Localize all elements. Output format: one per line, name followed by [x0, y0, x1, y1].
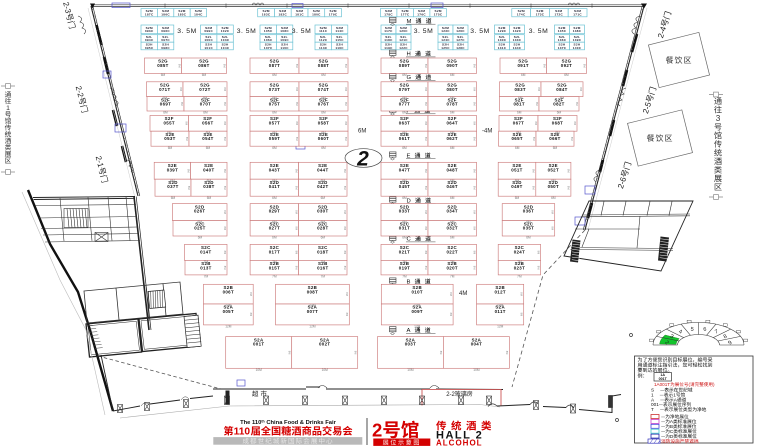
svg-text:6M: 6M	[272, 179, 277, 183]
svg-text:009T: 009T	[411, 309, 422, 314]
svg-text:6M: 6M	[321, 146, 326, 150]
svg-text:021T: 021T	[399, 249, 410, 254]
svg-text:8M: 8M	[249, 313, 253, 317]
svg-text:6M: 6M	[521, 73, 526, 77]
svg-text:6M: 6M	[450, 111, 455, 115]
svg-text:6M: 6M	[402, 196, 407, 200]
svg-text:6M: 6M	[168, 146, 173, 150]
svg-text:6M: 6M	[207, 196, 212, 200]
svg-text:102C: 102C	[221, 29, 230, 33]
svg-text:184C: 184C	[194, 13, 203, 17]
svg-text:8M: 8M	[223, 226, 227, 230]
svg-text:126C: 126C	[456, 29, 465, 33]
svg-text:2-2: 2-2	[446, 392, 455, 398]
svg-text:8M: 8M	[472, 251, 476, 255]
svg-text:7M: 7M	[450, 260, 455, 264]
svg-text:8M: 8M	[223, 121, 227, 125]
svg-text:022T: 022T	[446, 249, 457, 254]
svg-text:8M: 8M	[345, 292, 349, 296]
svg-text:6M: 6M	[321, 179, 326, 183]
svg-text:10M: 10M	[407, 368, 414, 372]
svg-text:8M: 8M	[223, 169, 227, 173]
svg-text:135C: 135C	[558, 29, 567, 33]
svg-text:011T: 011T	[495, 309, 506, 314]
svg-text:125C: 125C	[441, 46, 450, 50]
svg-text:8M: 8M	[185, 137, 189, 141]
svg-text:173C: 173C	[536, 13, 545, 17]
svg-text:6M: 6M	[515, 196, 520, 200]
svg-text:035T: 035T	[523, 226, 534, 231]
svg-text:12M: 12M	[497, 304, 504, 308]
svg-text:6M: 6M	[272, 236, 277, 240]
svg-text:8M: 8M	[223, 210, 227, 214]
svg-text:072T: 072T	[199, 87, 210, 92]
svg-text:078T: 078T	[446, 102, 457, 107]
svg-text:6M: 6M	[197, 220, 202, 224]
svg-text:8M: 8M	[223, 186, 227, 190]
svg-text:8M: 8M	[177, 64, 181, 68]
svg-text:045T: 045T	[399, 184, 410, 189]
svg-text:049T: 049T	[511, 184, 522, 189]
svg-text:8M: 8M	[449, 292, 453, 296]
svg-text:054T: 054T	[202, 136, 213, 141]
svg-text:8M: 8M	[288, 351, 292, 355]
svg-text:6M: 6M	[272, 196, 277, 200]
svg-text:066T: 066T	[549, 136, 560, 141]
svg-text:6M: 6M	[206, 146, 211, 150]
svg-text:8M: 8M	[472, 121, 476, 125]
svg-text:043T: 043T	[269, 167, 280, 172]
svg-text:080T: 080T	[446, 87, 457, 92]
svg-text:033T: 033T	[399, 209, 410, 214]
svg-text:8M: 8M	[344, 64, 348, 68]
svg-text:1: 1	[6, 105, 10, 112]
svg-text:001T: 001T	[659, 377, 668, 381]
svg-text:7M: 7M	[272, 260, 277, 264]
svg-text:176C: 176C	[417, 13, 426, 17]
svg-text:034T: 034T	[446, 209, 457, 214]
svg-text:8M: 8M	[294, 210, 298, 214]
svg-text:7M: 7M	[204, 275, 209, 279]
svg-text:7M: 7M	[402, 260, 407, 264]
svg-text:8M: 8M	[249, 292, 253, 296]
svg-text:12M: 12M	[309, 304, 316, 308]
svg-text:8M: 8M	[424, 64, 428, 68]
svg-text:6M: 6M	[518, 96, 523, 100]
svg-text:8M: 8M	[472, 226, 476, 230]
svg-text:029T: 029T	[269, 209, 280, 214]
svg-text:012T: 012T	[494, 289, 505, 294]
svg-text:8M: 8M	[542, 64, 546, 68]
svg-text:114C: 114C	[335, 29, 344, 33]
svg-text:8M: 8M	[223, 102, 227, 106]
svg-text:053T: 053T	[164, 136, 175, 141]
svg-text:129C: 129C	[498, 29, 507, 33]
svg-text:082T: 082T	[553, 102, 564, 107]
svg-text:6M: 6M	[515, 146, 520, 150]
svg-text:055T: 055T	[163, 121, 174, 126]
svg-text:181C: 181C	[295, 13, 304, 17]
svg-text:6M: 6M	[321, 96, 326, 100]
svg-text:-4M: -4M	[482, 129, 492, 135]
svg-text:068T: 068T	[552, 121, 563, 126]
svg-text:110: 110	[234, 427, 251, 438]
svg-text:007T: 007T	[307, 309, 318, 314]
svg-text:002T: 002T	[319, 342, 330, 347]
svg-text:6M: 6M	[202, 73, 207, 77]
svg-text:018T: 018T	[317, 249, 328, 254]
svg-text:061T: 061T	[399, 136, 410, 141]
svg-text:10M: 10M	[256, 368, 263, 372]
svg-text:6M: 6M	[515, 179, 520, 183]
svg-text:10M: 10M	[322, 368, 329, 372]
svg-text:093C: 093C	[145, 29, 154, 33]
svg-text:8M: 8M	[573, 121, 577, 125]
svg-text:8M: 8M	[295, 137, 299, 141]
svg-text:120C: 120C	[399, 29, 408, 33]
svg-text:038T: 038T	[203, 184, 214, 189]
svg-text:8M: 8M	[570, 137, 574, 141]
svg-text:8M: 8M	[344, 87, 348, 91]
svg-text:023T: 023T	[514, 265, 525, 270]
svg-text:008T: 008T	[307, 289, 318, 294]
svg-text:8M: 8M	[439, 351, 443, 355]
svg-text:8M: 8M	[567, 169, 571, 173]
svg-text:6M: 6M	[402, 131, 407, 135]
svg-text:079T: 079T	[399, 87, 410, 92]
svg-text:171C: 171C	[573, 13, 582, 17]
svg-text:104C: 104C	[221, 46, 230, 50]
svg-text:052T: 052T	[548, 167, 559, 172]
svg-text:6M: 6M	[272, 73, 277, 77]
svg-text:4M: 4M	[459, 291, 467, 297]
svg-text:131C: 131C	[498, 46, 507, 50]
svg-text:8M: 8M	[424, 186, 428, 190]
svg-text:12M: 12M	[309, 325, 316, 329]
svg-text:014T: 014T	[200, 249, 211, 254]
svg-text:7M: 7M	[402, 275, 407, 279]
svg-text:024T: 024T	[514, 249, 525, 254]
svg-text:8M: 8M	[535, 102, 539, 106]
svg-text:183C: 183C	[262, 13, 271, 17]
svg-text:8M: 8M	[579, 87, 583, 91]
svg-text:10M: 10M	[473, 368, 480, 372]
svg-text:8M: 8M	[344, 121, 348, 125]
svg-text:8M: 8M	[179, 87, 183, 91]
svg-text:047T: 047T	[399, 167, 410, 172]
svg-text:5: 5	[690, 327, 694, 333]
svg-text:1A001T: 1A001T	[654, 382, 670, 387]
svg-text:6M: 6M	[203, 96, 208, 100]
svg-text:6M: 6M	[321, 111, 326, 115]
svg-text:12M: 12M	[225, 304, 232, 308]
svg-text:042T: 042T	[317, 184, 328, 189]
svg-text:8M: 8M	[537, 87, 541, 91]
svg-text:006T: 006T	[223, 289, 234, 294]
svg-text:037T: 037T	[167, 184, 178, 189]
svg-text:175C: 175C	[434, 13, 443, 17]
svg-text:090T: 090T	[446, 63, 457, 68]
svg-text:8M: 8M	[534, 121, 538, 125]
svg-text:095C: 095C	[145, 46, 154, 50]
svg-text:019T: 019T	[399, 265, 410, 270]
svg-text:044T: 044T	[317, 167, 328, 172]
svg-text:8M: 8M	[575, 102, 579, 106]
svg-text:8M: 8M	[551, 210, 555, 214]
svg-text:3: 3	[716, 114, 721, 123]
svg-text:001T: 001T	[253, 342, 264, 347]
svg-text:6M: 6M	[402, 96, 407, 100]
svg-text:8M: 8M	[187, 186, 191, 190]
svg-text:6M: 6M	[198, 236, 203, 240]
svg-text:069T: 069T	[160, 102, 171, 107]
svg-text:6M: 6M	[526, 220, 531, 224]
svg-text:7M: 7M	[321, 260, 326, 264]
svg-text:8M: 8M	[424, 169, 428, 173]
svg-text:8M: 8M	[472, 210, 476, 214]
svg-text:063T: 063T	[399, 121, 410, 126]
svg-text:089T: 089T	[399, 63, 410, 68]
svg-text:048T: 048T	[446, 167, 457, 172]
svg-text:8M: 8M	[295, 102, 299, 106]
svg-text:8M: 8M	[424, 87, 428, 91]
svg-text:6M: 6M	[272, 220, 277, 224]
svg-text:050T: 050T	[548, 184, 559, 189]
svg-text:172C: 172C	[554, 13, 563, 17]
svg-text:065T: 065T	[511, 136, 522, 141]
svg-text:12M: 12M	[497, 325, 504, 329]
svg-text:058T: 058T	[318, 121, 329, 126]
svg-text:3. 5M: 3. 5M	[414, 28, 434, 35]
svg-text:8M: 8M	[532, 186, 536, 190]
svg-text:6M: 6M	[450, 96, 455, 100]
svg-text:8M: 8M	[294, 266, 298, 270]
svg-text:098C: 098C	[161, 46, 170, 50]
svg-text:6M: 6M	[167, 131, 172, 135]
svg-text:180C: 180C	[312, 13, 321, 17]
svg-text:8M: 8M	[567, 186, 571, 190]
svg-text:086T: 086T	[198, 63, 209, 68]
svg-text:6M: 6M	[163, 111, 168, 115]
svg-text:6M: 6M	[163, 96, 168, 100]
svg-text:8M: 8M	[449, 313, 453, 317]
svg-text:6M: 6M	[450, 220, 455, 224]
svg-text:8M: 8M	[536, 266, 540, 270]
svg-text:6M: 6M	[321, 220, 326, 224]
svg-text:179C: 179C	[329, 13, 338, 17]
svg-text:138C: 138C	[573, 29, 582, 33]
svg-text:116C: 116C	[335, 46, 344, 50]
svg-text:8M: 8M	[294, 251, 298, 255]
svg-text:8M: 8M	[180, 102, 184, 106]
svg-text:6M: 6M	[555, 131, 560, 135]
svg-text:ALCOHOL: ALCOHOL	[436, 438, 483, 446]
svg-text:8M: 8M	[223, 87, 227, 91]
svg-text:087T: 087T	[269, 63, 280, 68]
svg-text:6M: 6M	[206, 131, 211, 135]
svg-text:051T: 051T	[511, 167, 522, 172]
svg-text:6M: 6M	[450, 196, 455, 200]
svg-text:039T: 039T	[167, 167, 178, 172]
svg-text:6M: 6M	[272, 146, 277, 150]
svg-text:182C: 182C	[278, 13, 287, 17]
svg-text:8M: 8M	[505, 351, 509, 355]
svg-text:6M: 6M	[402, 111, 407, 115]
svg-text:6M: 6M	[207, 179, 212, 183]
svg-text:003T: 003T	[405, 342, 416, 347]
svg-text:060T: 060T	[318, 136, 329, 141]
svg-text:113C: 113C	[319, 46, 328, 50]
svg-text:6M: 6M	[553, 146, 558, 150]
svg-text:8M: 8M	[343, 251, 347, 255]
svg-text:8M: 8M	[532, 137, 536, 141]
svg-text:046T: 046T	[446, 184, 457, 189]
svg-text:The 110th China Food & Drinks: The 110th China Food & Drinks Fair	[240, 420, 337, 427]
svg-text:2: 2	[372, 420, 382, 441]
svg-text:8M: 8M	[344, 102, 348, 106]
svg-text:088T: 088T	[318, 63, 329, 68]
svg-text:128C: 128C	[456, 46, 465, 50]
svg-text:8M: 8M	[343, 226, 347, 230]
svg-text:064T: 064T	[446, 121, 457, 126]
svg-text:073T: 073T	[269, 87, 280, 92]
svg-text:8M: 8M	[295, 87, 299, 91]
svg-text:140C: 140C	[573, 46, 582, 50]
svg-text:083T: 083T	[514, 87, 525, 92]
svg-text:6M: 6M	[321, 131, 326, 135]
svg-text:12M: 12M	[414, 325, 421, 329]
svg-text:8M: 8M	[424, 121, 428, 125]
svg-text:040T: 040T	[203, 167, 214, 172]
svg-text:3. 5M: 3. 5M	[177, 28, 197, 35]
svg-text:036T: 036T	[523, 209, 534, 214]
svg-text:010T: 010T	[411, 289, 422, 294]
svg-text:7M: 7M	[517, 260, 522, 264]
svg-text:8M: 8M	[343, 169, 347, 173]
svg-text:7M: 7M	[321, 275, 326, 279]
svg-text:004T: 004T	[471, 342, 482, 347]
svg-text:075T: 075T	[269, 102, 280, 107]
svg-text:6M: 6M	[517, 111, 522, 115]
svg-text:T: T	[651, 407, 654, 412]
svg-text:8M: 8M	[222, 64, 226, 68]
svg-text:177C: 177C	[401, 13, 410, 17]
svg-text:6M: 6M	[203, 111, 208, 115]
svg-text:8M: 8M	[472, 266, 476, 270]
svg-text:8M: 8M	[472, 137, 476, 141]
svg-text:062T: 062T	[446, 136, 457, 141]
svg-text:8M: 8M	[223, 266, 227, 270]
svg-text:6M: 6M	[450, 236, 455, 240]
svg-text:8M: 8M	[343, 266, 347, 270]
svg-text:6M: 6M	[358, 129, 366, 135]
svg-text:8M: 8M	[424, 266, 428, 270]
svg-text:8M: 8M	[472, 186, 476, 190]
svg-text:107C: 107C	[264, 46, 273, 50]
svg-text:8M: 8M	[343, 210, 347, 214]
svg-text:7M: 7M	[517, 275, 522, 279]
svg-text:017T: 017T	[269, 249, 280, 254]
svg-text:137C: 137C	[558, 46, 567, 50]
svg-text:016T: 016T	[317, 265, 328, 270]
svg-text:132C: 132C	[513, 29, 522, 33]
svg-text:7M: 7M	[272, 275, 277, 279]
svg-text:6M: 6M	[526, 236, 531, 240]
svg-text:092T: 092T	[561, 63, 572, 68]
svg-text:6M: 6M	[516, 131, 521, 135]
svg-text:8M: 8M	[184, 121, 188, 125]
svg-text:8M: 8M	[536, 251, 540, 255]
svg-text:8M: 8M	[520, 313, 524, 317]
svg-text:8M: 8M	[472, 169, 476, 173]
svg-text:185C: 185C	[178, 13, 187, 17]
svg-text:8M: 8M	[354, 351, 358, 355]
svg-text:6M: 6M	[321, 196, 326, 200]
svg-text:096C: 096C	[161, 29, 170, 33]
svg-text:076T: 076T	[318, 102, 329, 107]
svg-text:8M: 8M	[532, 169, 536, 173]
svg-text:117C: 117C	[384, 29, 393, 33]
svg-text:027T: 027T	[269, 226, 280, 231]
svg-text:8M: 8M	[472, 102, 476, 106]
svg-text:6M: 6M	[171, 196, 176, 200]
svg-text:020T: 020T	[446, 265, 457, 270]
svg-text:8M: 8M	[472, 87, 476, 91]
svg-text:028T: 028T	[317, 226, 328, 231]
svg-text:111C: 111C	[319, 29, 328, 33]
svg-text:091T: 091T	[517, 63, 528, 68]
svg-text:6M: 6M	[450, 146, 455, 150]
svg-text:8M: 8M	[294, 186, 298, 190]
svg-text:6M: 6M	[560, 96, 565, 100]
svg-text:013T: 013T	[200, 265, 211, 270]
svg-text:134C: 134C	[513, 46, 522, 50]
svg-text:6M: 6M	[551, 196, 556, 200]
svg-text:077T: 077T	[399, 102, 410, 107]
svg-text:12M: 12M	[225, 325, 232, 329]
svg-text:3. 5M: 3. 5M	[237, 28, 257, 35]
svg-text:12M: 12M	[414, 304, 421, 308]
svg-text:105C: 105C	[264, 29, 273, 33]
svg-text:030T: 030T	[317, 209, 328, 214]
svg-text:122C: 122C	[399, 46, 408, 50]
svg-text:8M: 8M	[472, 64, 476, 68]
svg-text:110C: 110C	[280, 46, 289, 50]
svg-text:032T: 032T	[446, 226, 457, 231]
svg-text:025T: 025T	[194, 226, 205, 231]
svg-text:8M: 8M	[424, 102, 428, 106]
svg-text:6M: 6M	[450, 131, 455, 135]
svg-text:119C: 119C	[384, 46, 393, 50]
svg-text:8M: 8M	[424, 137, 428, 141]
svg-text:6M: 6M	[402, 220, 407, 224]
svg-text:6M: 6M	[272, 131, 277, 135]
svg-text:186C: 186C	[161, 13, 170, 17]
svg-text:6M: 6M	[557, 111, 562, 115]
svg-text:6M: 6M	[161, 73, 166, 77]
svg-text:7M: 7M	[450, 275, 455, 279]
svg-text:6: 6	[703, 327, 707, 333]
svg-text:6M: 6M	[564, 73, 569, 77]
svg-text:8M: 8M	[345, 313, 349, 317]
svg-text:8M: 8M	[343, 186, 347, 190]
svg-text:8M: 8M	[582, 64, 586, 68]
svg-text:074T: 074T	[318, 87, 329, 92]
svg-text:2: 2	[356, 148, 369, 171]
svg-text:8M: 8M	[223, 251, 227, 255]
svg-text:101C: 101C	[204, 46, 213, 50]
svg-text:8M: 8M	[186, 169, 190, 173]
